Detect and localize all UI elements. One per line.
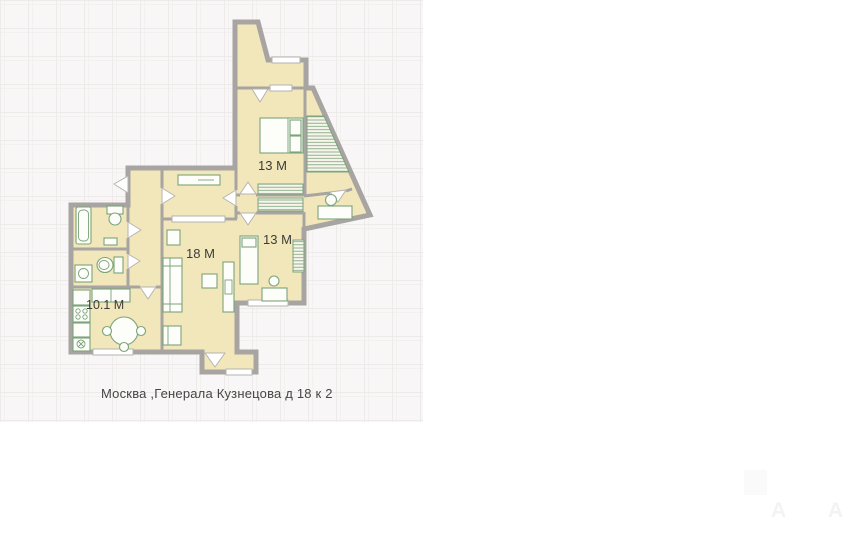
chair-icon: [103, 327, 112, 336]
wardrobe-icon: [293, 240, 304, 272]
dining-table-icon: [110, 317, 138, 345]
floor-plan-panel: 13 М 13 М 18 М 10.1 М: [0, 0, 423, 422]
address-caption: Москва ,Генерала Кузнецова д 18 к 2: [101, 386, 333, 401]
toilet-tank-icon: [114, 257, 123, 273]
watermark-letter: A: [828, 499, 843, 523]
room-label-living: 18 М: [186, 246, 215, 261]
table-icon: [202, 274, 217, 288]
room-label-bedroom-right: 13 М: [263, 232, 292, 247]
shelf-icon: [258, 198, 303, 211]
room-label-bedroom-top: 13 М: [258, 158, 287, 173]
desk-icon: [318, 206, 352, 219]
window-icon: [226, 369, 252, 375]
chair-icon: [326, 195, 337, 206]
shelf-icon: [258, 184, 303, 194]
screenshot-canvas: 13 М 13 М 18 М 10.1 М Москва ,Генерала К…: [0, 0, 864, 540]
wardrobe-icon: [307, 116, 349, 172]
chair-icon: [120, 343, 129, 352]
desk-icon: [262, 288, 287, 301]
towel-rail-icon: [104, 238, 117, 245]
pillow-icon: [290, 120, 301, 135]
pillow-icon: [290, 136, 301, 152]
washing-machine-icon: [75, 265, 92, 282]
room-label-kitchen: 10.1 М: [86, 298, 124, 312]
cabinet-icon: [73, 323, 90, 337]
pillow-icon: [242, 238, 256, 247]
cabinet-icon: [167, 230, 180, 245]
wide-opening: [172, 216, 225, 222]
armchair-icon: [163, 326, 181, 345]
floor-plan-svg: 13 М 13 М 18 М 10.1 М: [0, 0, 423, 422]
window-icon: [270, 85, 292, 91]
watermark-letter: A: [771, 499, 786, 523]
sink-icon: [109, 213, 121, 225]
window-icon: [272, 57, 300, 63]
entry-door-swing-icon: [114, 176, 128, 193]
chair-icon: [269, 276, 279, 286]
watermark-square: [744, 470, 767, 495]
chair-icon: [137, 327, 146, 336]
